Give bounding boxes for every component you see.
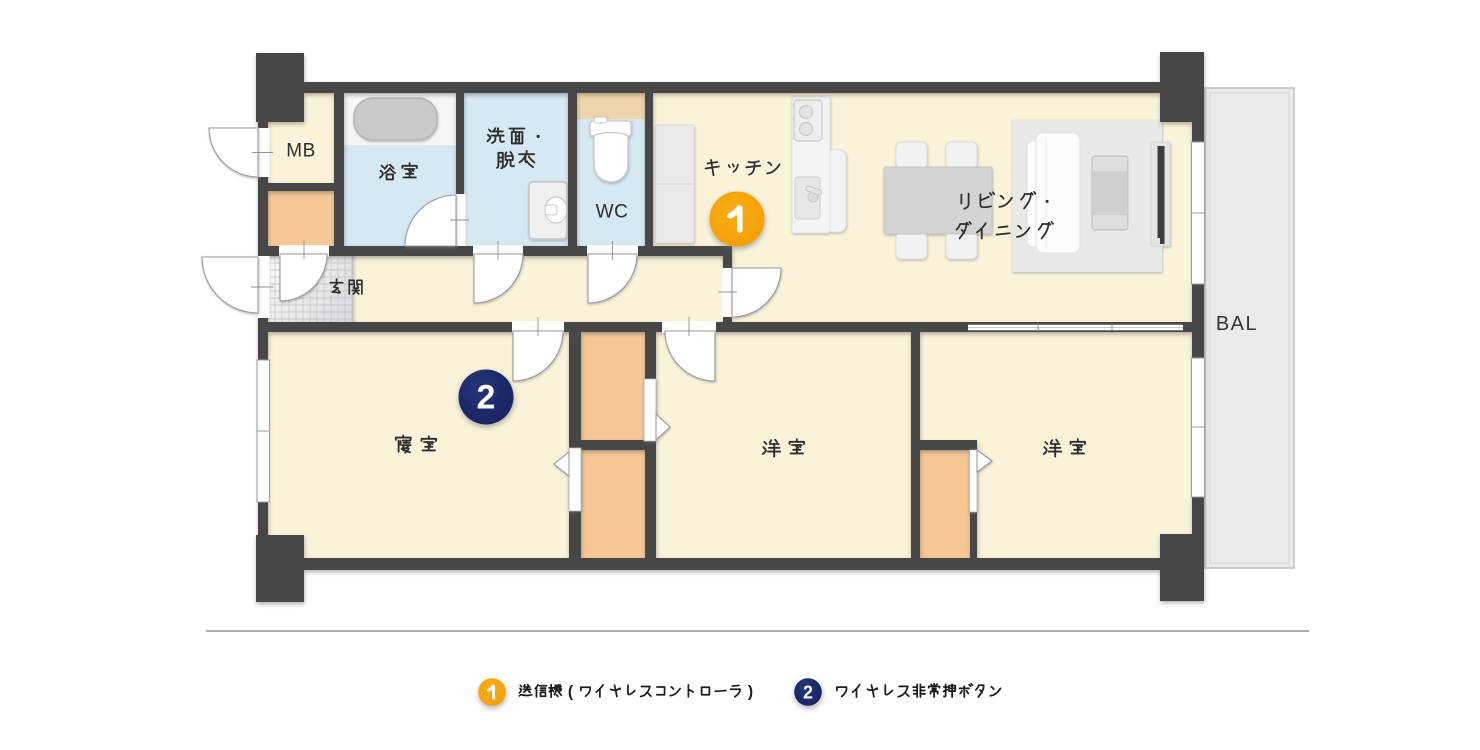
svg-text:2: 2 [477,379,496,417]
svg-text:MB: MB [286,141,316,162]
svg-text:): ) [748,684,753,701]
svg-text:(: ( [568,684,574,701]
svg-text:BAL: BAL [1216,313,1258,335]
svg-text:2: 2 [803,683,813,703]
svg-text:WC: WC [596,202,629,223]
